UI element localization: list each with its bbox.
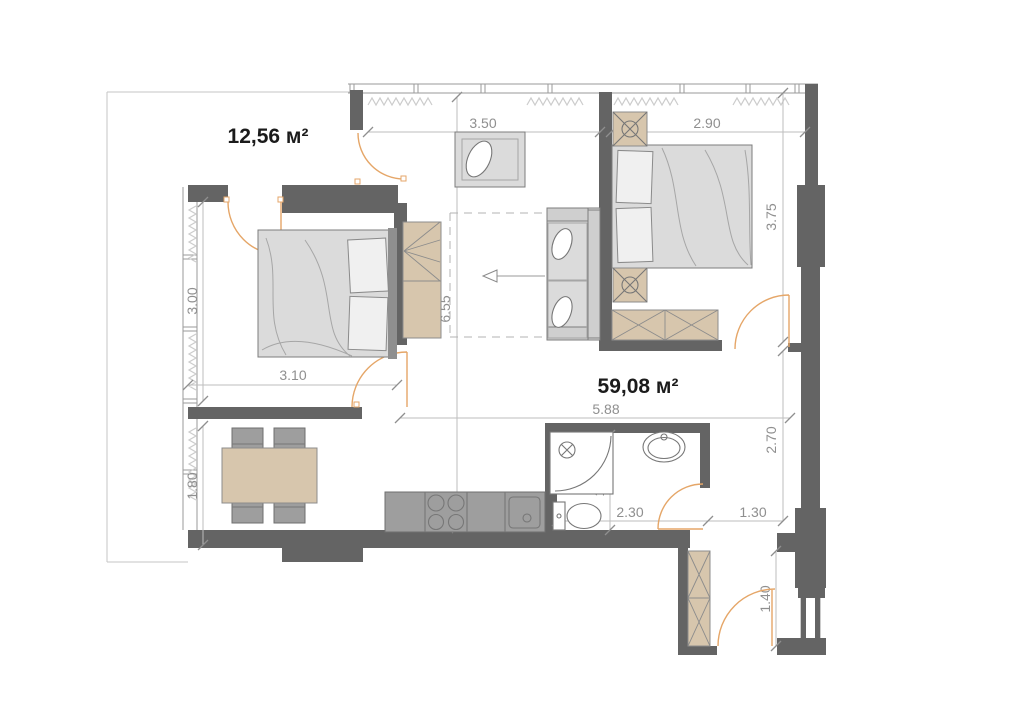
- nightstand-top: [613, 112, 647, 146]
- dim-dressing-width: 3.50: [469, 115, 496, 131]
- area-label-bedroom-left: 12,56 м²: [228, 125, 309, 148]
- sofa-fold-out-arrow-icon: [450, 213, 545, 337]
- dim-bedroom-right-width: 2.90: [693, 115, 720, 131]
- dining-chair: [274, 501, 305, 523]
- dining-chair: [232, 501, 263, 523]
- bed-left: [258, 228, 397, 359]
- dim-bathroom-width: 2.30: [616, 504, 643, 520]
- shower-icon: [550, 432, 613, 494]
- area-label-apartment: 59,08 м²: [598, 375, 679, 398]
- toilet-icon: [553, 502, 601, 530]
- door-bedroom-right: [735, 295, 789, 349]
- dining-set: [222, 428, 317, 523]
- dim-hall-height: 2.70: [763, 426, 779, 453]
- dim-living-width: 5.88: [592, 401, 619, 417]
- wardrobe-right-bedroom: [612, 310, 718, 340]
- floor-plan-drawing: 3.50 2.90 3.75 3.00 6.55 3.10 5.88 1.80 …: [0, 0, 1024, 724]
- dim-bedroom-left-width: 3.10: [279, 367, 306, 383]
- window-band-top: [348, 84, 818, 93]
- door-bathroom: [658, 484, 703, 529]
- floor-plan-canvas: 3.50 2.90 3.75 3.00 6.55 3.10 5.88 1.80 …: [0, 0, 1024, 724]
- dim-bedroom-left-window: 3.00: [184, 287, 200, 314]
- dim-hall-width: 1.30: [739, 504, 766, 520]
- dining-chair: [274, 428, 305, 450]
- bed-right: [612, 145, 752, 268]
- wardrobe-left-bedroom: [403, 222, 441, 338]
- door-terrace: [355, 133, 406, 184]
- nightstand-bottom: [613, 268, 647, 302]
- dining-chair: [232, 428, 263, 450]
- kitchen-counter: [385, 492, 545, 532]
- washbasin-icon: [643, 432, 685, 462]
- dim-bedroom-right-height: 3.75: [763, 203, 779, 230]
- dim-dining-height: 1.80: [184, 472, 200, 499]
- door-living-dining: [352, 352, 407, 407]
- dining-table: [222, 448, 317, 503]
- sofa: [547, 208, 600, 340]
- armchair: [455, 132, 525, 187]
- entry-wardrobe: [688, 551, 710, 646]
